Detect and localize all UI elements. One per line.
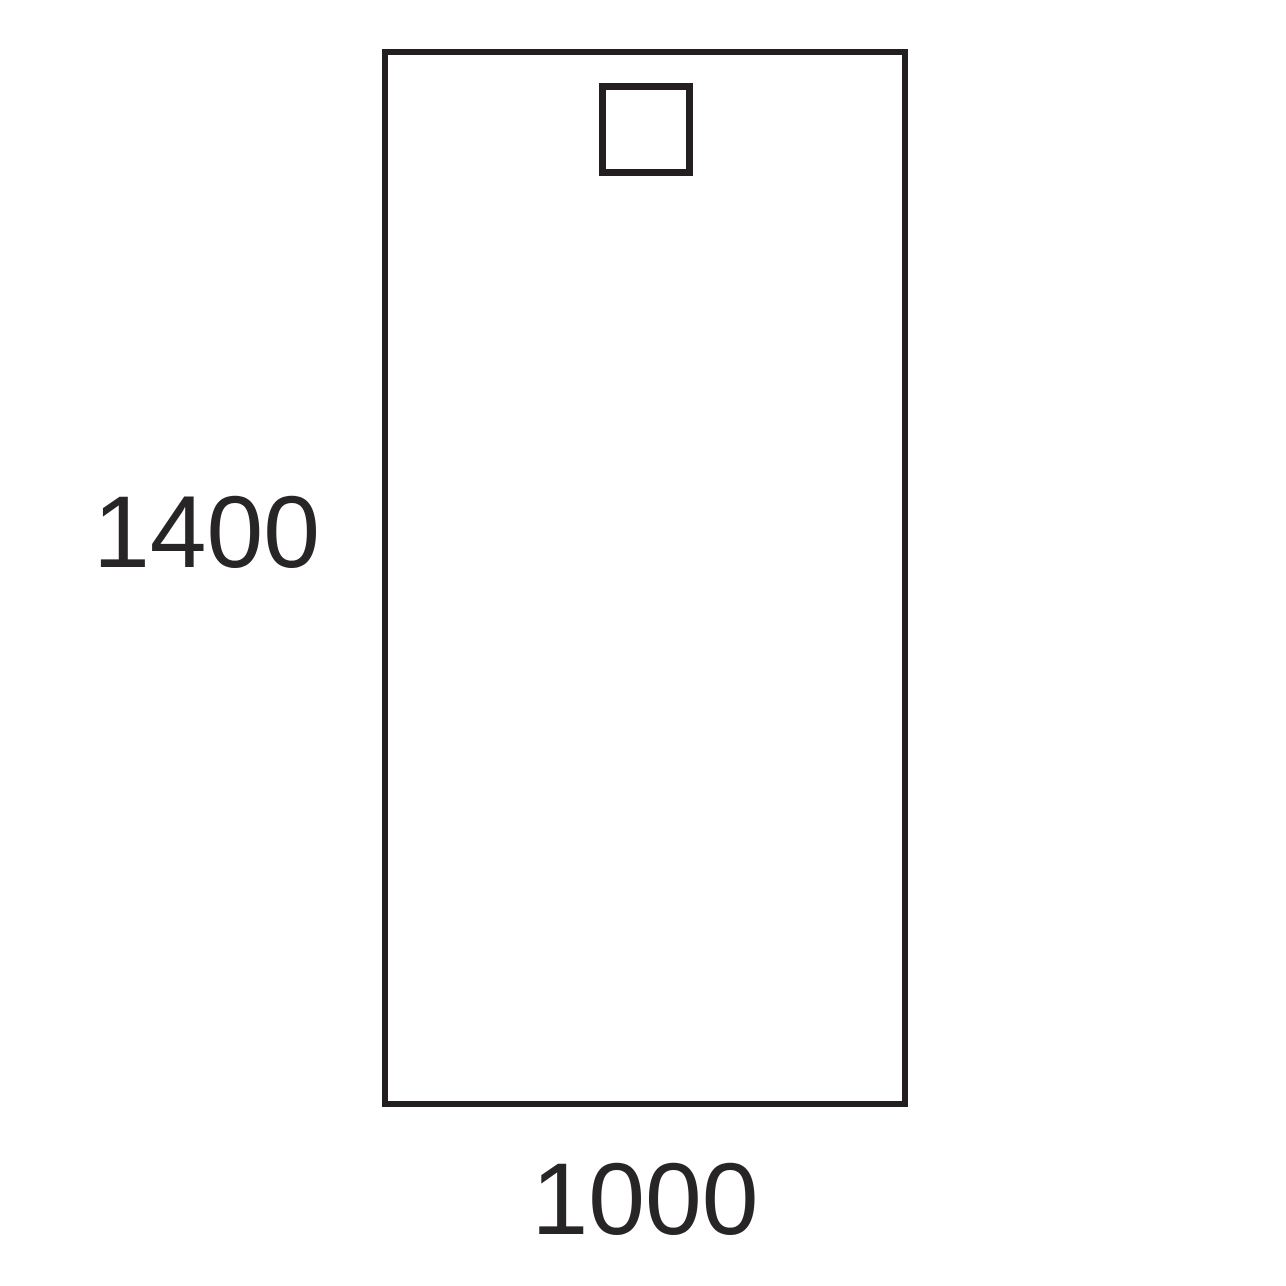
height-dimension-label: 1400 xyxy=(93,481,320,583)
width-dimension-label: 1000 xyxy=(382,1148,908,1250)
dimension-diagram-canvas: 1400 1000 xyxy=(0,0,1286,1286)
panel-outline-rect xyxy=(382,49,908,1107)
cutout-square xyxy=(599,83,693,176)
